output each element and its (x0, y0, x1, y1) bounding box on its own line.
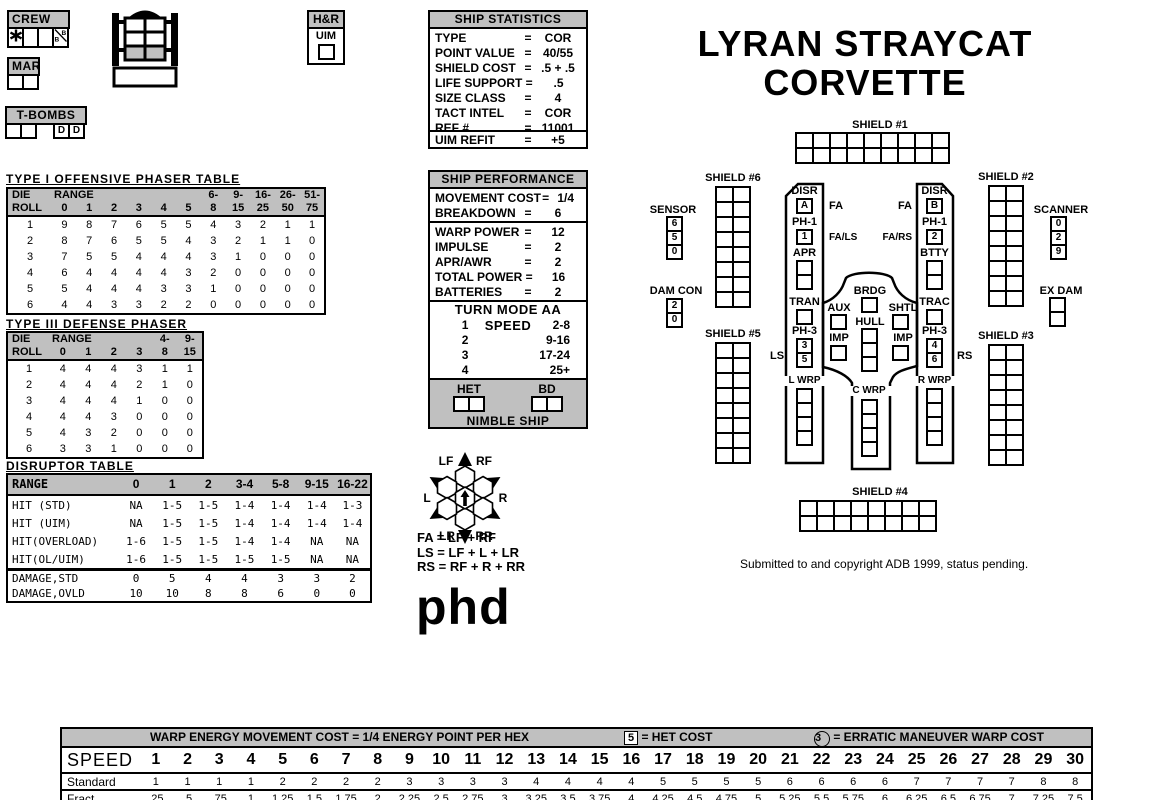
lwrp-track (796, 388, 813, 446)
damage-box (898, 148, 915, 163)
box-grid (796, 388, 813, 446)
data-cell: 0 (300, 233, 325, 249)
energy-cell: 3 (203, 751, 235, 769)
damage-box (989, 246, 1006, 261)
damage-box (902, 501, 919, 516)
dam-con-label: DAM CON (645, 286, 707, 297)
turn-mode-row: 425+ (430, 363, 586, 378)
left-disr-label: DISR (786, 186, 823, 197)
damage-box (21, 124, 36, 138)
damage-box: 1 (797, 230, 812, 244)
data-cell: 6 (7, 297, 52, 314)
energy-cell: 3.75 (584, 793, 616, 800)
aux-box (830, 314, 847, 330)
damage-box (716, 448, 733, 463)
mar-track (7, 74, 40, 90)
energy-cell: 6 (299, 751, 331, 769)
power-rows: WARP POWER=12IMPULSE=2APR/AWR=2TOTAL POW… (430, 223, 586, 300)
damage-box: B (927, 199, 942, 213)
data-cell: DAMAGE,OVLD (7, 586, 118, 602)
data-cell: 2 (101, 425, 127, 441)
ex-dam-track (1049, 297, 1066, 327)
data-cell: 4 (101, 360, 127, 377)
damage-box: 2 (1051, 231, 1066, 245)
energy-cell: 4 (584, 776, 616, 788)
data-cell: 0 (251, 281, 276, 297)
shield3-label: SHIELD #3 (975, 331, 1037, 342)
damage-box (830, 133, 847, 148)
damage-box: D (54, 124, 69, 138)
right-disr-arc: FA (884, 201, 912, 212)
energy-table-header: WARP ENERGY MOVEMENT COST = 1/4 ENERGY P… (62, 729, 1091, 748)
rs-arc-label: RS (957, 351, 979, 362)
data-cell: 1-4 (226, 495, 262, 514)
energy-cell: 4.75 (711, 793, 743, 800)
data-cell: 8 (52, 233, 77, 249)
data-cell: NA (118, 514, 154, 532)
data-cell: 0 (251, 249, 276, 265)
box-grid: 46 (926, 338, 943, 368)
column-header: 0 (50, 346, 76, 360)
box-grid (799, 500, 937, 532)
data-cell: 0 (118, 570, 154, 587)
data-cell: 4 (50, 425, 76, 441)
data-cell: 1-6 (118, 550, 154, 570)
energy-cell: 7.5 (1059, 793, 1091, 800)
energy-cell: 24 (869, 751, 901, 769)
column-header: 9-15 (299, 474, 335, 495)
box-grid (861, 399, 878, 457)
box-grid: A (796, 198, 813, 214)
column-header: 0 (52, 202, 77, 216)
stat-text: = (521, 61, 535, 75)
damage-box (1050, 298, 1065, 312)
het-group: HET (453, 383, 485, 412)
energy-header-em: 3 = ERRATIC MANEUVER WARP COST (814, 729, 1044, 747)
damage-box (831, 346, 846, 360)
damage-box (716, 358, 733, 373)
data-cell: 3 (176, 265, 201, 281)
data-cell: 4 (7, 409, 50, 425)
column-header: 9- (178, 332, 204, 346)
data-cell: 2 (7, 233, 52, 249)
energy-cell: 2 (362, 776, 394, 788)
uim-track (309, 43, 343, 63)
box-grid (715, 186, 751, 308)
damage-box (862, 400, 877, 414)
energy-header-het: 5 = HET COST (624, 729, 712, 746)
damage-box (733, 433, 750, 448)
damage-box (989, 405, 1006, 420)
hull-track (861, 328, 878, 372)
phaser3-title: TYPE III DEFENSE PHASER (6, 317, 187, 331)
damage-box (927, 261, 942, 275)
tbombs-track: DD (5, 125, 87, 145)
damage-box (862, 329, 877, 343)
box-grid (988, 344, 1024, 466)
damage-box (989, 450, 1006, 465)
mar-label: MAR (7, 57, 40, 76)
phaser1-title: TYPE I OFFENSIVE PHASER TABLE (6, 172, 240, 186)
data-cell: 0 (178, 425, 204, 441)
box-grid (861, 297, 878, 313)
stat-text: 6 (535, 206, 581, 220)
damage-box (989, 276, 1006, 291)
energy-cell: 1 (235, 776, 267, 788)
stat-text: = (521, 31, 535, 45)
left-ph1-arc: FA/LS (829, 233, 869, 243)
stat-text: POINT VALUE (435, 46, 521, 60)
column-header: 3-4 (226, 474, 262, 495)
uim-refit-label: UIM REFIT (435, 133, 521, 147)
imp-left-label: IMP (823, 333, 855, 344)
data-cell: HIT (STD) (7, 495, 118, 514)
box-grid: 2 (926, 229, 943, 245)
data-cell: 4 (50, 377, 76, 393)
data-cell: 1 (226, 249, 251, 265)
data-cell: 1-5 (226, 550, 262, 570)
data-cell: 0 (127, 425, 153, 441)
data-cell: HIT(OL/UIM) (7, 550, 118, 570)
damage-box (927, 310, 942, 324)
data-cell: 4 (126, 249, 151, 265)
column-header: 8 (152, 346, 178, 360)
data-cell: 1-5 (190, 514, 226, 532)
box-grid: 029 (1050, 216, 1067, 260)
energy-cell: 1 (235, 793, 267, 800)
column-header: 3 (127, 346, 153, 360)
box-grid (715, 342, 751, 464)
data-cell: 1 (275, 216, 300, 233)
damage-box (851, 501, 868, 516)
data-cell: 2 (7, 377, 50, 393)
energy-cell: 2 (172, 751, 204, 769)
damage-box (8, 75, 23, 89)
damage-box (881, 148, 898, 163)
cwrp-label: C WRP (845, 386, 893, 396)
energy-cell: 2.5 (425, 793, 457, 800)
data-cell: 0 (178, 409, 204, 425)
column-header: DIE (7, 188, 52, 202)
box-grid (5, 123, 37, 139)
stat-text: LIFE SUPPORT (435, 76, 522, 90)
shield5-track (715, 342, 751, 464)
energy-cell: 1 (203, 776, 235, 788)
crew-track: B B (7, 27, 69, 48)
data-cell: 1 (152, 360, 178, 377)
stat-text: = (521, 285, 535, 299)
damage-box (813, 148, 830, 163)
damage-box (919, 501, 936, 516)
column-header: 50 (275, 202, 300, 216)
data-cell: 4 (101, 377, 127, 393)
crew-cell (23, 28, 38, 47)
energy-cell: 6 (774, 776, 806, 788)
data-cell: 4 (76, 360, 102, 377)
turn-mode-text: 2 (430, 333, 500, 348)
column-header: ROLL (7, 202, 52, 216)
star-icon (10, 29, 22, 42)
stat-text: = (521, 240, 535, 254)
energy-cell: 4 (552, 776, 584, 788)
tbomb-cells (5, 123, 37, 139)
data-cell: 4 (50, 409, 76, 425)
crew-box: CREW B B (7, 10, 70, 48)
energy-cell: 7 (901, 776, 933, 788)
data-cell: 3 (176, 281, 201, 297)
shield1-label: SHIELD #1 (795, 120, 965, 131)
column-header: 15 (226, 202, 251, 216)
damage-box (862, 357, 877, 371)
damage-box (893, 315, 908, 329)
energy-cell: 3 (489, 793, 521, 800)
stat-text: WARP POWER (435, 225, 521, 239)
turn-mode-row: 12-8 (430, 318, 586, 333)
damage-box (1006, 261, 1023, 276)
damage-box (881, 133, 898, 148)
damage-box (797, 431, 812, 445)
data-cell: 3 (101, 409, 127, 425)
energy-cell: 3 (425, 776, 457, 788)
damage-box (831, 315, 846, 329)
damage-box (834, 516, 851, 531)
standard-row: Standard 111122223333444455556666777788 (62, 772, 1091, 789)
data-cell: 8 (77, 216, 102, 233)
damage-box (733, 358, 750, 373)
turn-mode-text: 25+ (500, 363, 586, 378)
stat-text: BREAKDOWN (435, 206, 521, 220)
data-cell: 1-5 (154, 550, 190, 570)
energy-cell: 5 (267, 751, 299, 769)
data-cell: 0 (152, 441, 178, 458)
data-cell: 3 (201, 233, 226, 249)
damage-box (813, 133, 830, 148)
shield4-track (799, 500, 937, 532)
data-cell: 3 (226, 216, 251, 233)
damage-box (716, 232, 733, 247)
damage-box (716, 373, 733, 388)
stat-text: = (521, 225, 535, 239)
sensor-track: 650 (666, 216, 683, 260)
damage-box (733, 262, 750, 277)
data-cell: 1-4 (263, 514, 299, 532)
energy-cell: 3.25 (520, 793, 552, 800)
damage-box (989, 201, 1006, 216)
damage-box: 6 (667, 217, 682, 231)
energy-cell: 5.5 (806, 793, 838, 800)
data-cell: 4 (201, 216, 226, 233)
turn-mode-rows: 12-829-16317-24425+ (430, 318, 586, 378)
data-cell: 0 (226, 265, 251, 281)
data-cell: 1-5 (154, 514, 190, 532)
data-cell: 0 (251, 297, 276, 314)
energy-cell: 17 (647, 751, 679, 769)
data-cell: 1-5 (190, 532, 226, 550)
turn-mode-text: 2-8 (500, 318, 586, 333)
brdg-box (861, 297, 878, 313)
data-cell: 2 (127, 377, 153, 393)
scanner-label: SCANNER (1031, 205, 1091, 216)
column-header (151, 188, 176, 202)
data-cell: 0 (300, 297, 325, 314)
column-header: 5-8 (263, 474, 299, 495)
warp-energy-table: WARP ENERGY MOVEMENT COST = 1/4 ENERGY P… (60, 727, 1093, 800)
data-cell: 1 (101, 441, 127, 458)
box-grid (7, 74, 39, 90)
damage-box (796, 133, 813, 148)
data-cell: 5 (176, 216, 201, 233)
data-cell: 4 (50, 393, 76, 409)
uim-refit-panel: UIM REFIT = +5 (428, 130, 588, 149)
shield4-label: SHIELD #4 (795, 487, 965, 498)
shtl-box (892, 314, 909, 330)
data-cell: 4 (151, 265, 176, 281)
data-cell: 0 (152, 425, 178, 441)
damage-box: 5 (797, 353, 812, 367)
energy-cell: 14 (552, 751, 584, 769)
data-cell: 3 (7, 249, 52, 265)
ship-statistics-panel: SHIP STATISTICS TYPE=CORPOINT VALUE=40/5… (428, 10, 588, 138)
damage-box (989, 390, 1006, 405)
right-ph1-label: PH-1 (916, 217, 953, 228)
crew-cell (38, 28, 53, 47)
data-cell: 6 (263, 586, 299, 602)
boarding-parties-icon: B B (54, 29, 67, 42)
imp-right-label: IMP (885, 333, 921, 344)
damage-box (1006, 246, 1023, 261)
data-cell: 0 (127, 409, 153, 425)
data-cell: 3 (76, 425, 102, 441)
damage-box (733, 403, 750, 418)
damage-box (733, 292, 750, 307)
energy-cell: 6 (806, 776, 838, 788)
column-header: DIE (7, 332, 50, 346)
damage-box (733, 202, 750, 217)
column-header: 2 (101, 346, 127, 360)
shield3-track (988, 344, 1024, 466)
energy-cell: 6 (869, 776, 901, 788)
box-grid (531, 396, 563, 412)
damage-box (834, 501, 851, 516)
energy-cell: 3.5 (552, 793, 584, 800)
box-grid (318, 44, 335, 60)
equals-sign: = (521, 133, 535, 147)
crew-cell-casualty (8, 28, 23, 47)
damage-box (6, 124, 21, 138)
stat-text: = (522, 76, 536, 90)
stat-text: APR/AWR (435, 255, 521, 269)
damage-box (1006, 276, 1023, 291)
damage-box (1006, 231, 1023, 246)
data-cell: 4 (176, 249, 201, 265)
data-cell: 5 (151, 216, 176, 233)
column-header: 6- (201, 188, 226, 202)
damage-box (989, 345, 1006, 360)
data-cell: 3 (76, 441, 102, 458)
stat-text: SIZE CLASS (435, 91, 521, 105)
copyright-note: Submitted to and copyright ADB 1999, sta… (740, 557, 1028, 571)
column-header: 3 (126, 202, 151, 216)
stat-text: = (521, 206, 535, 220)
damage-box: 9 (1051, 245, 1066, 259)
column-header: 51- (300, 188, 325, 202)
column-header: 4 (151, 202, 176, 216)
turn-mode-row: 317-24 (430, 348, 586, 363)
data-cell: 4 (7, 265, 52, 281)
damage-box (1050, 312, 1065, 326)
ship-silhouette (107, 4, 183, 95)
standard-row-label: Standard (62, 775, 140, 789)
shtl-label: SHTL (885, 303, 921, 314)
stat-row: IMPULSE=2 (430, 239, 586, 254)
data-cell: 1 (201, 281, 226, 297)
energy-cell: 23 (837, 751, 869, 769)
box-grid (861, 328, 878, 372)
data-cell: 3 (127, 360, 153, 377)
data-cell: 0 (251, 265, 276, 281)
data-cell: 1 (178, 360, 204, 377)
right-disr-box: B (926, 198, 943, 214)
damage-box: D (69, 124, 84, 138)
tbomb-d-cells: DD (53, 123, 85, 139)
data-cell: 4 (126, 281, 151, 297)
energy-cell: 2.75 (457, 793, 489, 800)
damage-box (733, 448, 750, 463)
hr-box: H&R UIM (307, 10, 345, 65)
het-track (453, 396, 485, 412)
damage-box (885, 516, 902, 531)
lwrp-label: L WRP (784, 376, 825, 386)
left-ph3-label: PH-3 (786, 326, 823, 337)
data-cell: 0 (127, 441, 153, 458)
damage-box (319, 45, 334, 59)
data-cell: 0 (275, 281, 300, 297)
data-cell: 0 (201, 297, 226, 314)
data-cell: 2 (151, 297, 176, 314)
rwrp-track (926, 388, 943, 446)
stat-row: LIFE SUPPORT=.5 (430, 75, 586, 90)
energy-cell: 2 (362, 793, 394, 800)
stat-text: 16 (536, 270, 581, 284)
turn-mode-text: 3 (430, 348, 500, 363)
energy-cell: 10 (425, 751, 457, 769)
damage-box (1006, 390, 1023, 405)
column-header: 2 (190, 474, 226, 495)
stat-text: 2 (535, 255, 581, 269)
damage-box (1006, 375, 1023, 390)
data-cell: 6 (7, 441, 50, 458)
energy-cell: 6.25 (901, 793, 933, 800)
data-cell: 8 (226, 586, 262, 602)
column-header: 0 (118, 474, 154, 495)
left-ph1-label: PH-1 (786, 217, 823, 228)
damage-box (800, 516, 817, 531)
damage-box (469, 397, 484, 411)
energy-cell: 15 (584, 751, 616, 769)
energy-cell: 1.5 (299, 793, 331, 800)
phaser3-table: DIERANGE4-9-ROLL012381514443112444210344… (6, 331, 204, 459)
scanner-track: 029 (1050, 216, 1067, 260)
data-cell: 4 (102, 265, 127, 281)
arc-r-label: R (499, 491, 508, 505)
energy-cell: 13 (520, 751, 552, 769)
energy-cell: 2 (267, 776, 299, 788)
damage-box (1006, 345, 1023, 360)
het-cost-symbol: 5 (624, 731, 638, 745)
uim-refit-value: +5 (535, 133, 581, 147)
hull-label: HULL (848, 317, 892, 328)
rwrp-label: R WRP (913, 376, 956, 386)
